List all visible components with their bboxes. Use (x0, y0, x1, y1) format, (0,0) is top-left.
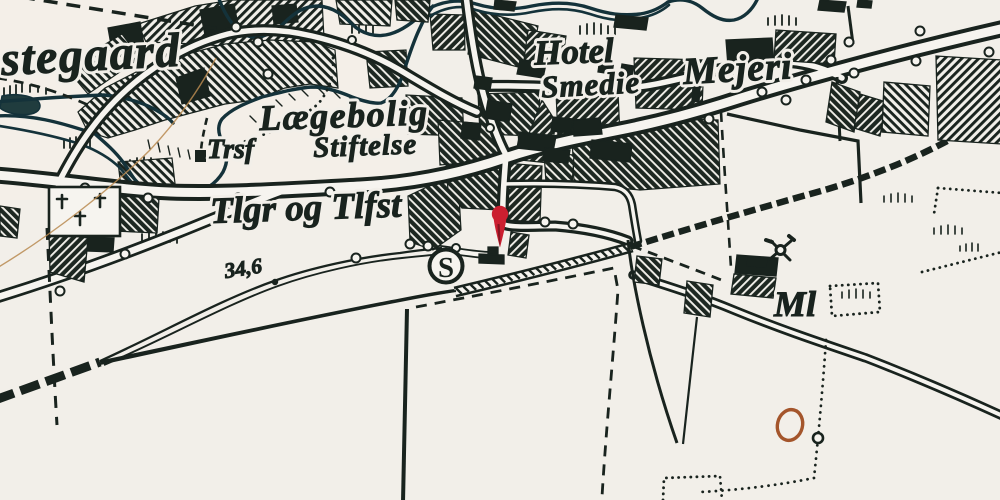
svg-text:S: S (438, 252, 454, 284)
svg-text:Smedie: Smedie (540, 64, 641, 104)
svg-text:estegaard: estegaard (0, 24, 182, 88)
svg-text:Stiftelse: Stiftelse (313, 128, 418, 164)
svg-text:Mejeri: Mejeri (681, 45, 793, 93)
svg-text:Ml: Ml (773, 284, 816, 324)
svg-text:Tlgr og Tlfst: Tlgr og Tlfst (209, 184, 403, 232)
svg-text:Trsf: Trsf (207, 134, 257, 165)
